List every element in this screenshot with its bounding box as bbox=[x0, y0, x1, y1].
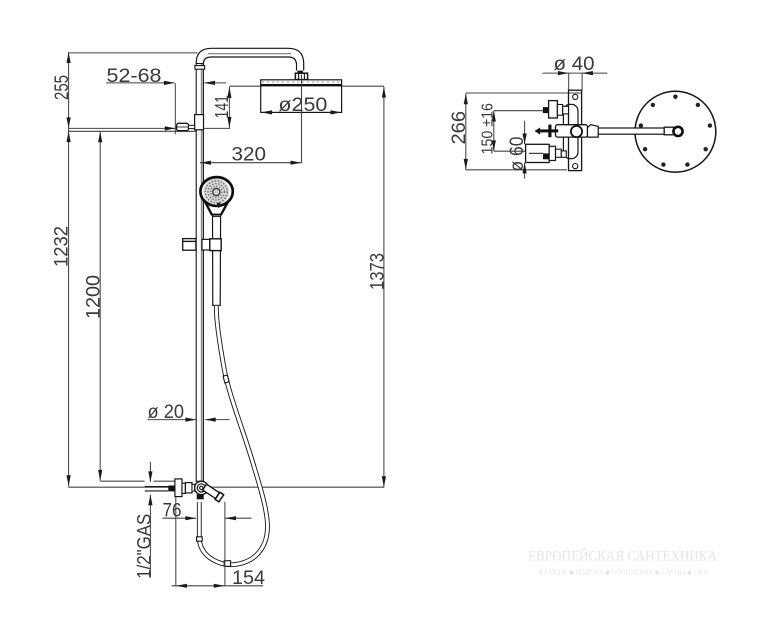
svg-text:1232: 1232 bbox=[52, 226, 73, 267]
svg-text:150 ±16: 150 ±16 bbox=[480, 103, 497, 155]
svg-text:76: 76 bbox=[163, 500, 182, 521]
svg-text:КАМЕНЬ ◆ ПЛИТКА ◆ ОТОПЛЕНИЕ ◆: КАМЕНЬ ◆ ПЛИТКА ◆ ОТОПЛЕНИЕ ◆ САУНЫ ◆ СП… bbox=[539, 569, 708, 577]
svg-text:1200: 1200 bbox=[84, 275, 105, 319]
svg-text:266: 266 bbox=[449, 111, 470, 145]
svg-text:ø 60: ø 60 bbox=[507, 137, 528, 172]
svg-text:1/2"GAS: 1/2"GAS bbox=[134, 514, 155, 579]
svg-text:141: 141 bbox=[212, 95, 232, 119]
svg-text:52-68: 52-68 bbox=[107, 66, 162, 87]
svg-text:154: 154 bbox=[232, 568, 265, 589]
svg-text:ø250: ø250 bbox=[278, 95, 327, 116]
svg-text:ЕВРОПЕЙСКАЯ САНТЕХНИКА: ЕВРОПЕЙСКАЯ САНТЕХНИКА bbox=[528, 548, 717, 565]
svg-text:1373: 1373 bbox=[368, 253, 389, 290]
svg-text:255: 255 bbox=[52, 75, 73, 100]
svg-text:320: 320 bbox=[232, 145, 267, 166]
svg-text:ø 20: ø 20 bbox=[148, 402, 185, 423]
svg-text:ø 40: ø 40 bbox=[554, 54, 595, 75]
